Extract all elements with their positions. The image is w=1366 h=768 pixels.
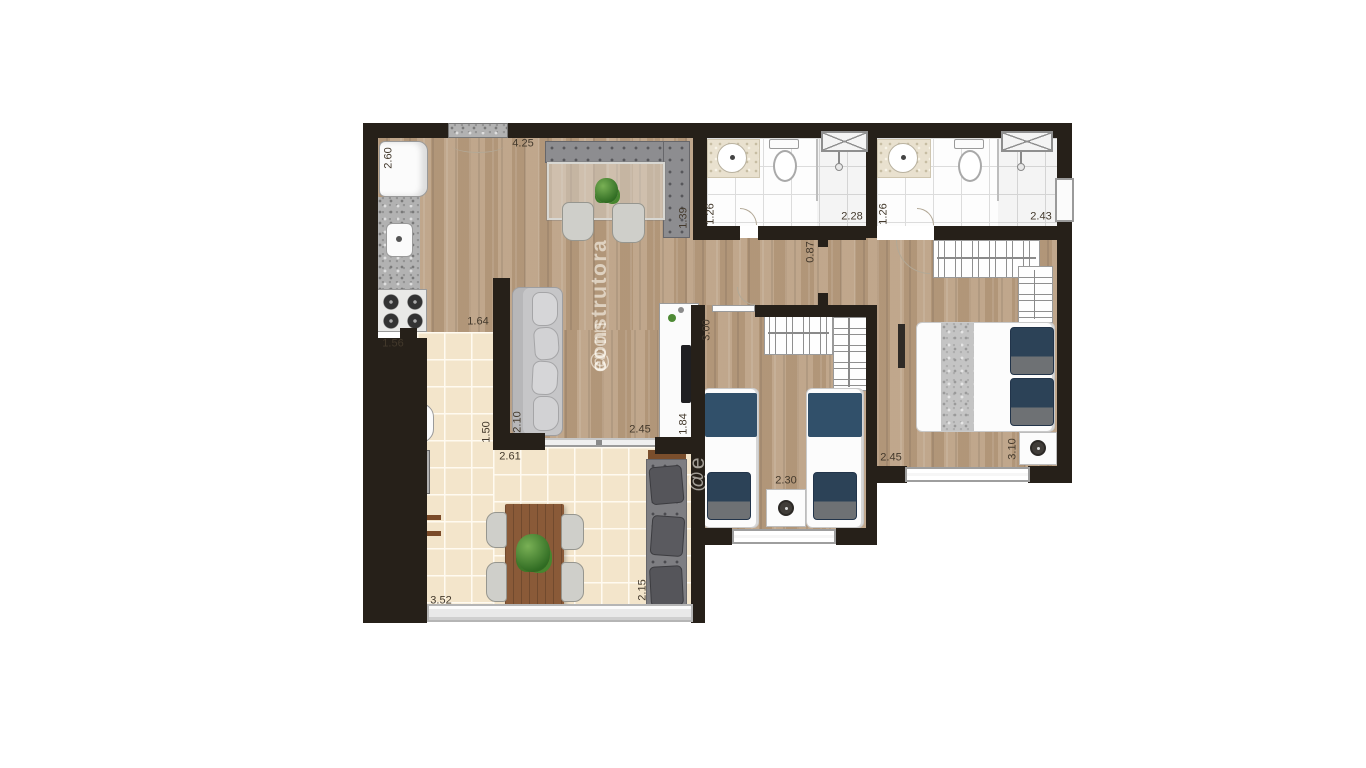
bedroom2-bed-right-pillow (813, 472, 857, 520)
dining-table-plant (595, 178, 618, 203)
master-lamp (1030, 440, 1046, 456)
terrace-bench-pillow-1 (648, 465, 684, 506)
bathroom1-toilet-bowl (773, 150, 797, 182)
bathroom1-shower-head-dot (835, 163, 843, 171)
wall-bedroom2-bottom-right (836, 528, 877, 545)
sofa-cushion-4 (533, 396, 559, 431)
hallway-floor (693, 238, 877, 305)
dim-terrace-length: 3.52 (430, 596, 451, 607)
shaft-above-bathroom2 (1001, 131, 1053, 152)
bathroom2-shower-head-dot (1017, 163, 1025, 171)
dim-bath2-width: 1.26 (879, 203, 890, 224)
bedroom2-door-leaf (712, 305, 755, 312)
bathroom2-vent-window (1055, 178, 1074, 222)
terrace-bench-pillow-3 (649, 565, 684, 607)
dim-laundry-width: 1.56 (382, 339, 403, 350)
dim-bath2-length: 2.43 (1030, 212, 1051, 223)
dim-fridge-wall: 2.60 (384, 147, 395, 168)
wall-bedroom2-bottom-left (691, 528, 732, 545)
terrace-glass-railing (427, 604, 693, 622)
master-bedroom-window (905, 467, 1030, 482)
dim-dining-bench-depth: 1.39 (679, 207, 690, 228)
wall-bedroom2-top (755, 305, 866, 317)
sofa-cushion-3 (531, 360, 559, 395)
kitchen-faucet (396, 236, 402, 242)
dim-terrace-bench-length: 2.15 (638, 579, 649, 600)
bedroom2-bed-left-pillow (707, 472, 751, 520)
entry-door-arc (452, 138, 504, 153)
sofa-cushion-1 (532, 292, 558, 326)
entry-door-threshold (448, 123, 508, 138)
floor-plan-canvas: @econconstrutora @e 2.60 4.25 1.39 1.26 … (0, 0, 1366, 768)
wall-bath-bottom-a (693, 226, 740, 240)
dim-hall-width: 0.87 (806, 241, 817, 262)
watermark-brand-bold: construtora (588, 239, 612, 372)
dim-bedroom1-width: 2.45 (880, 453, 901, 464)
terrace-chair-tl (486, 512, 507, 548)
bathroom1-toilet-tank (769, 139, 799, 149)
dining-chair-right (612, 203, 645, 243)
dim-bedroom1-length: 3.10 (1008, 438, 1019, 459)
sliding-door-handle (596, 440, 602, 445)
dim-service-opening: 1.50 (482, 421, 493, 442)
bathroom2-toilet-bowl (958, 150, 982, 182)
wall-bath-bottom-c (934, 226, 1058, 240)
bathroom1-faucet (730, 155, 735, 160)
tv-rack-plant-decor (668, 314, 676, 322)
dim-kitchen-dining-width: 4.25 (512, 139, 533, 150)
dim-bedroom2-width: 2.30 (775, 476, 796, 487)
wall-hall-stub-upper (818, 238, 828, 247)
terrace-table-plant (516, 534, 550, 572)
wall-master-bottom-left (866, 466, 907, 483)
wall-right (1057, 123, 1072, 483)
terrace-chair-tr (561, 514, 584, 550)
watermark-fragment-text: @e (686, 456, 710, 492)
bedroom2-bed-left-blanket (705, 393, 757, 437)
bathroom2-faucet (901, 155, 906, 160)
dim-tv-wall: 1.84 (679, 413, 690, 434)
bedroom2-bed-right-blanket (808, 393, 862, 437)
wall-living-southeast (655, 437, 702, 454)
wall-bedroom-divider (866, 305, 877, 545)
grill-handle-2 (427, 531, 441, 536)
wall-master-bottom-right (1028, 466, 1072, 483)
master-closet-side (1018, 266, 1053, 323)
terrace-chair-br (561, 562, 584, 602)
sofa-cushion-2 (533, 326, 560, 361)
master-wall-accent (898, 324, 905, 368)
bedroom2-window (732, 529, 836, 544)
dining-chair-left (562, 202, 594, 241)
dim-living-door-width: 2.45 (629, 425, 650, 436)
bathroom1-shower-partition (816, 139, 818, 201)
dim-kitchen-opening: 1.64 (467, 317, 488, 328)
wall-kitchen-corner (493, 433, 545, 450)
bedroom2-lamp (778, 500, 794, 516)
master-pillow-bottom (1010, 378, 1054, 426)
terrace-chair-bl (486, 562, 507, 602)
bathroom2-shower-partition (997, 139, 999, 201)
master-pillow-top (1010, 327, 1054, 375)
dim-bedroom2-length: 3.00 (702, 319, 713, 340)
dim-bath1-length: 2.28 (841, 212, 862, 223)
tv-rack-decor (678, 307, 684, 313)
wall-service-column (363, 338, 427, 623)
grill-handle-1 (427, 515, 441, 520)
dim-terrace-width: 2.61 (499, 452, 520, 463)
terrace-bench-pillow-2 (650, 515, 686, 557)
dim-bath1-width: 1.26 (706, 203, 717, 224)
tv (681, 345, 691, 403)
bedroom2-closet-side (833, 313, 867, 391)
master-bed-blanket (941, 323, 974, 431)
dim-sofa-wall: 2.10 (513, 411, 524, 432)
wall-bathroom-divider (866, 138, 877, 238)
wall-hall-stub-lower (818, 293, 828, 305)
stove (377, 289, 427, 332)
wall-bath-bottom-b (758, 226, 866, 240)
wall-kitchen-vertical (493, 278, 510, 450)
bedroom2-closet-top (764, 313, 833, 355)
bathroom2-toilet-tank (954, 139, 984, 149)
shaft-above-bathroom1 (821, 131, 868, 152)
